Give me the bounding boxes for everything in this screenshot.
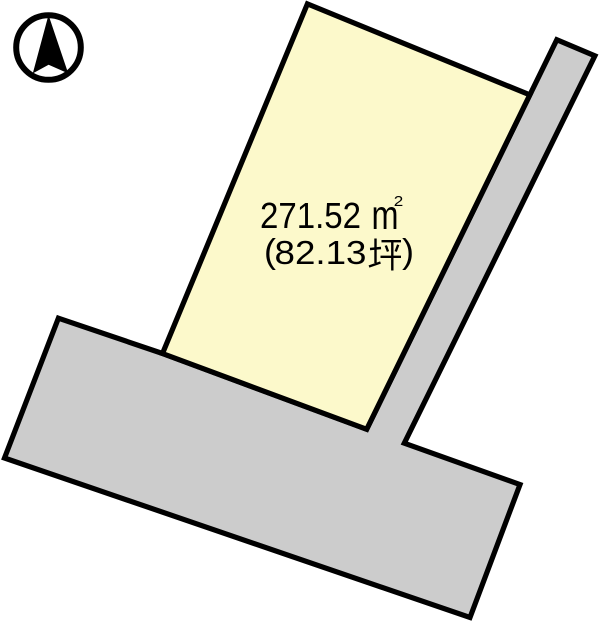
svg-text:82.13: 82.13 <box>275 234 367 271</box>
svg-text:271.52: 271.52 <box>260 195 361 236</box>
svg-text:): ) <box>402 233 414 271</box>
svg-text:2: 2 <box>394 193 404 210</box>
